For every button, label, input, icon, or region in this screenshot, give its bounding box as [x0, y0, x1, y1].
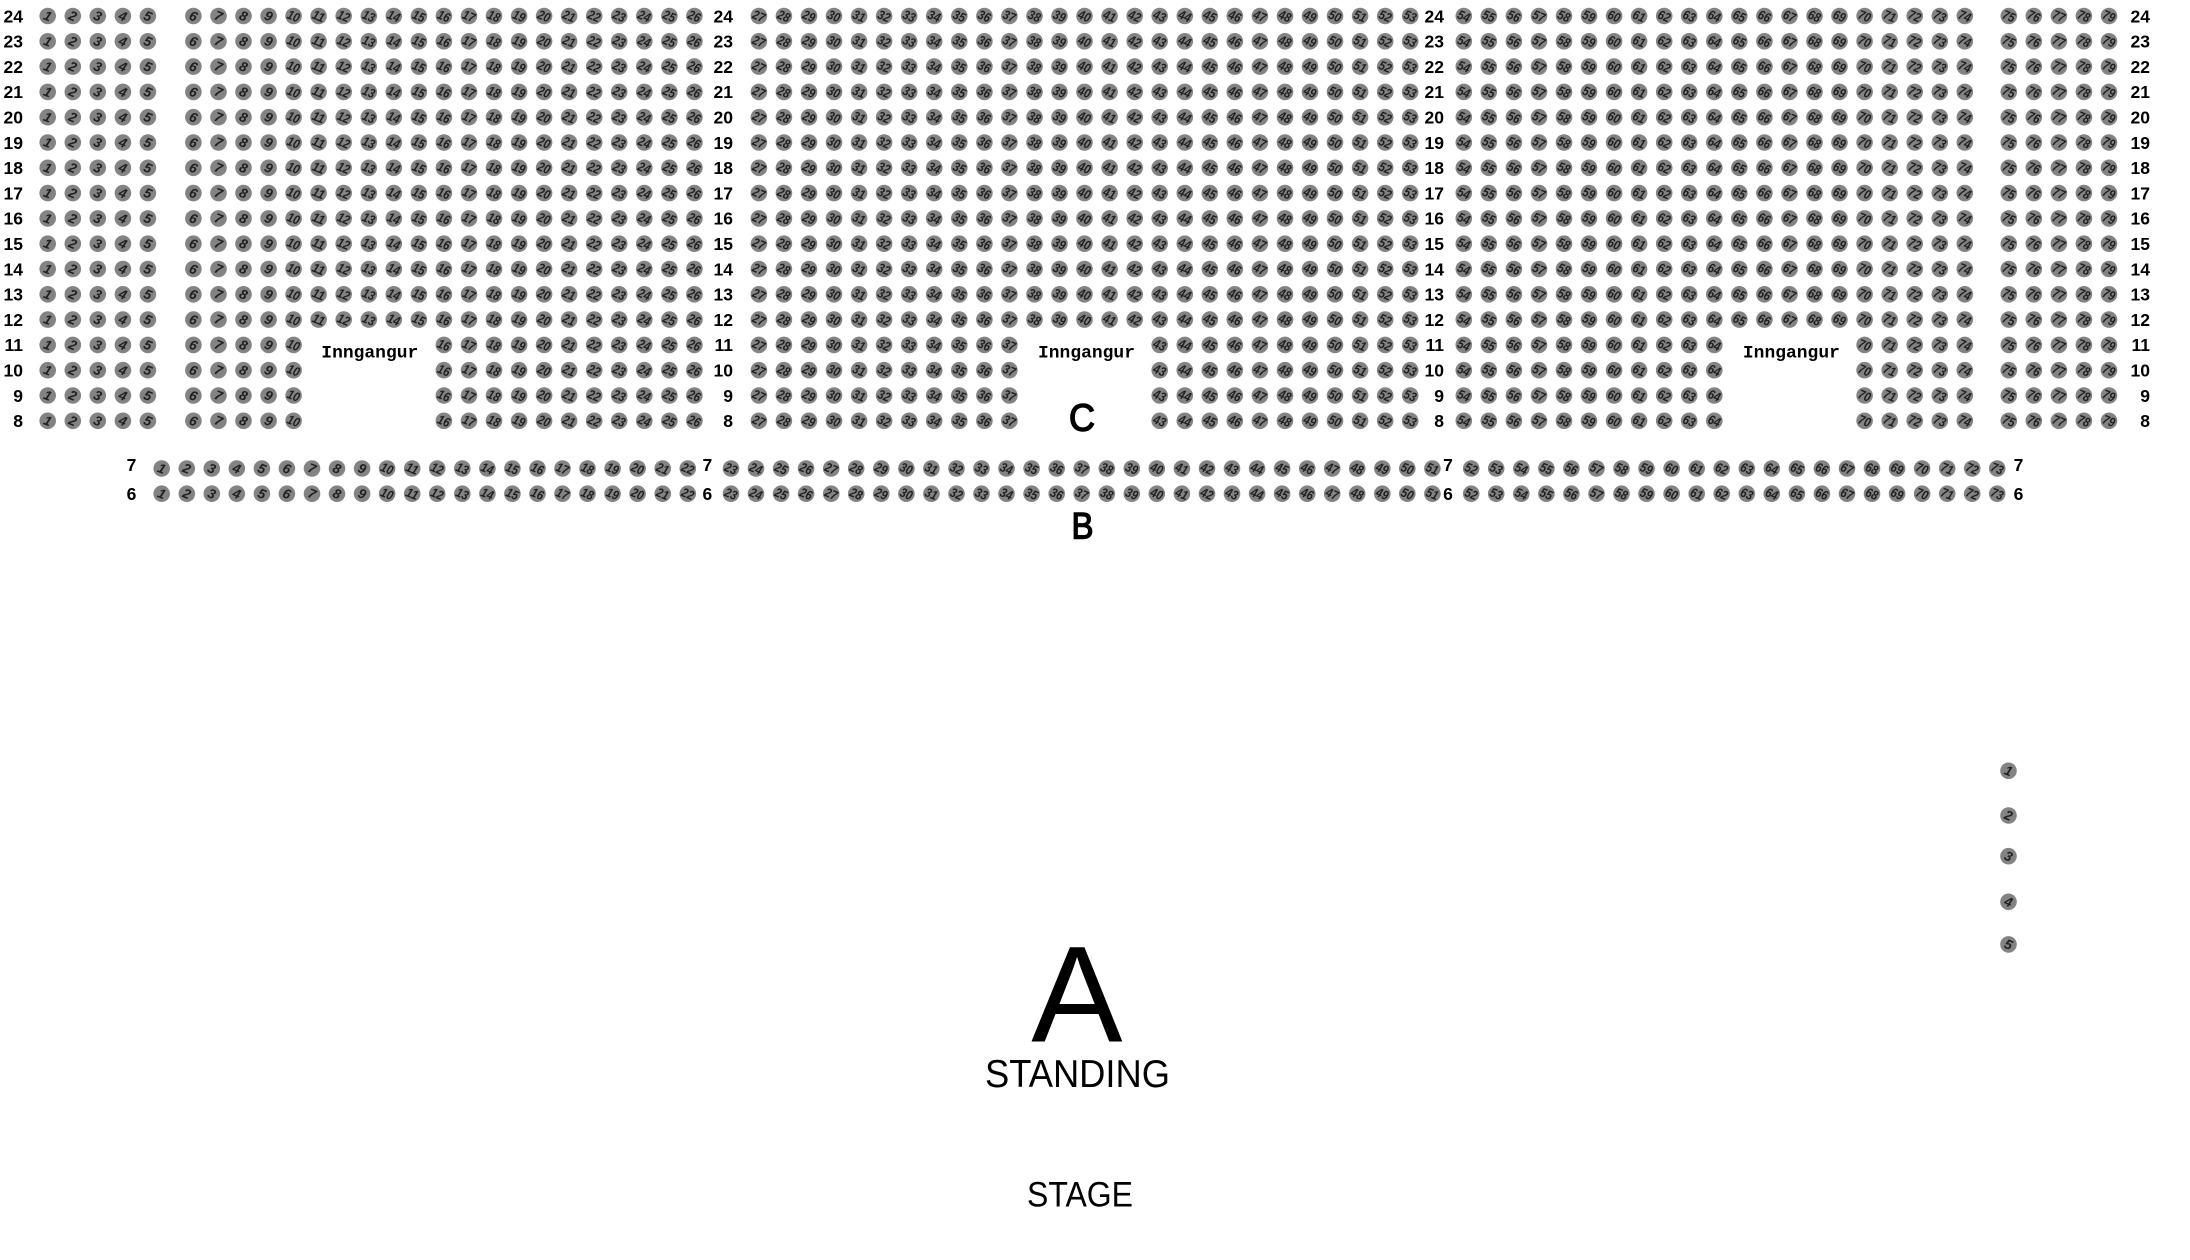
svg-text:20: 20 — [4, 108, 24, 128]
svg-text:12: 12 — [2131, 310, 2151, 330]
svg-text:13: 13 — [1425, 285, 1445, 305]
svg-text:15: 15 — [1425, 234, 1445, 254]
svg-text:21: 21 — [1425, 82, 1445, 102]
svg-text:18: 18 — [714, 158, 734, 178]
svg-text:14: 14 — [4, 259, 24, 279]
svg-text:11: 11 — [1426, 335, 1445, 355]
svg-text:13: 13 — [4, 285, 24, 305]
svg-text:20: 20 — [1425, 108, 1445, 128]
svg-text:A: A — [1031, 919, 1123, 1072]
svg-text:10: 10 — [1425, 361, 1445, 381]
svg-text:15: 15 — [2131, 234, 2151, 254]
svg-text:22: 22 — [4, 57, 24, 77]
svg-text:10: 10 — [4, 361, 24, 381]
svg-text:10: 10 — [2131, 361, 2151, 381]
svg-text:21: 21 — [4, 82, 24, 102]
svg-text:15: 15 — [714, 234, 734, 254]
svg-text:9: 9 — [2140, 386, 2150, 406]
svg-text:24: 24 — [714, 6, 734, 26]
svg-text:8: 8 — [13, 411, 23, 431]
svg-text:16: 16 — [2131, 209, 2151, 229]
svg-text:14: 14 — [1425, 259, 1445, 279]
svg-text:7: 7 — [1443, 455, 1453, 475]
svg-text:9: 9 — [13, 386, 23, 406]
svg-text:6: 6 — [1443, 484, 1453, 504]
svg-text:12: 12 — [714, 310, 734, 330]
svg-text:17: 17 — [1425, 183, 1444, 203]
svg-text:14: 14 — [714, 259, 734, 279]
svg-text:B: B — [1072, 506, 1094, 547]
svg-text:Inngangur: Inngangur — [1038, 344, 1135, 364]
svg-text:18: 18 — [4, 158, 24, 178]
svg-text:13: 13 — [2131, 285, 2151, 305]
svg-text:22: 22 — [1425, 57, 1445, 77]
svg-text:STANDING: STANDING — [985, 1053, 1170, 1096]
svg-text:12: 12 — [1425, 310, 1445, 330]
svg-text:8: 8 — [2140, 411, 2150, 431]
svg-text:19: 19 — [714, 133, 734, 153]
svg-text:20: 20 — [714, 108, 734, 128]
svg-text:24: 24 — [4, 6, 24, 26]
svg-text:22: 22 — [714, 57, 734, 77]
svg-text:11: 11 — [2132, 335, 2151, 355]
svg-text:6: 6 — [127, 484, 137, 504]
svg-text:17: 17 — [714, 183, 733, 203]
svg-text:18: 18 — [1425, 158, 1445, 178]
svg-text:16: 16 — [4, 209, 24, 229]
svg-text:Inngangur: Inngangur — [321, 344, 418, 364]
svg-text:23: 23 — [4, 32, 24, 52]
svg-text:8: 8 — [1434, 411, 1444, 431]
svg-text:9: 9 — [723, 386, 733, 406]
svg-text:14: 14 — [2131, 259, 2151, 279]
svg-text:8: 8 — [723, 411, 733, 431]
svg-text:19: 19 — [1425, 133, 1445, 153]
svg-text:Inngangur: Inngangur — [1743, 344, 1840, 364]
svg-text:6: 6 — [702, 484, 712, 504]
svg-text:23: 23 — [1425, 32, 1445, 52]
svg-text:10: 10 — [714, 361, 734, 381]
svg-text:C: C — [1069, 398, 1095, 440]
svg-text:7: 7 — [2014, 455, 2024, 475]
svg-text:11: 11 — [715, 335, 734, 355]
svg-text:17: 17 — [2131, 183, 2150, 203]
svg-text:18: 18 — [2131, 158, 2151, 178]
svg-text:21: 21 — [714, 82, 734, 102]
svg-text:12: 12 — [4, 310, 24, 330]
svg-text:19: 19 — [2131, 133, 2151, 153]
svg-text:17: 17 — [4, 183, 23, 203]
svg-text:16: 16 — [1425, 209, 1445, 229]
svg-text:15: 15 — [4, 234, 24, 254]
svg-text:22: 22 — [2131, 57, 2151, 77]
svg-text:11: 11 — [5, 335, 24, 355]
svg-text:7: 7 — [127, 455, 137, 475]
svg-text:7: 7 — [702, 455, 712, 475]
svg-text:23: 23 — [2131, 32, 2151, 52]
svg-text:21: 21 — [2131, 82, 2151, 102]
svg-text:24: 24 — [2131, 6, 2151, 26]
svg-text:9: 9 — [1434, 386, 1444, 406]
svg-text:16: 16 — [714, 209, 734, 229]
svg-text:20: 20 — [2131, 108, 2151, 128]
svg-text:13: 13 — [714, 285, 734, 305]
svg-text:23: 23 — [714, 32, 734, 52]
svg-text:6: 6 — [2014, 484, 2024, 504]
svg-text:19: 19 — [4, 133, 24, 153]
svg-text:STAGE: STAGE — [1027, 1175, 1133, 1215]
svg-text:24: 24 — [1425, 6, 1445, 26]
